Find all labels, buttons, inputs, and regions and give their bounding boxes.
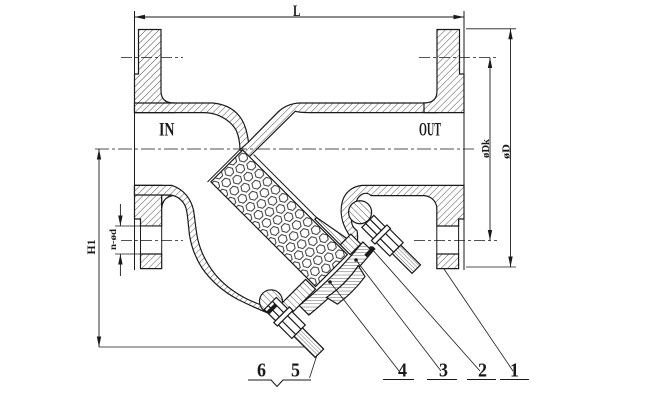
- svg-text:OUT: OUT: [419, 120, 441, 141]
- svg-text:H1: H1: [86, 239, 98, 254]
- svg-text:n-ød: n-ød: [109, 228, 119, 250]
- svg-text:IN: IN: [159, 120, 175, 141]
- svg-text:5: 5: [291, 361, 300, 382]
- svg-text:4: 4: [398, 361, 407, 382]
- svg-text:6: 6: [257, 361, 266, 382]
- svg-text:øDk: øDk: [480, 138, 492, 158]
- svg-text:3: 3: [439, 361, 448, 382]
- svg-text:1: 1: [510, 361, 519, 382]
- svg-text:L: L: [293, 3, 301, 20]
- svg-text:øD: øD: [501, 144, 513, 159]
- svg-text:2: 2: [478, 361, 487, 382]
